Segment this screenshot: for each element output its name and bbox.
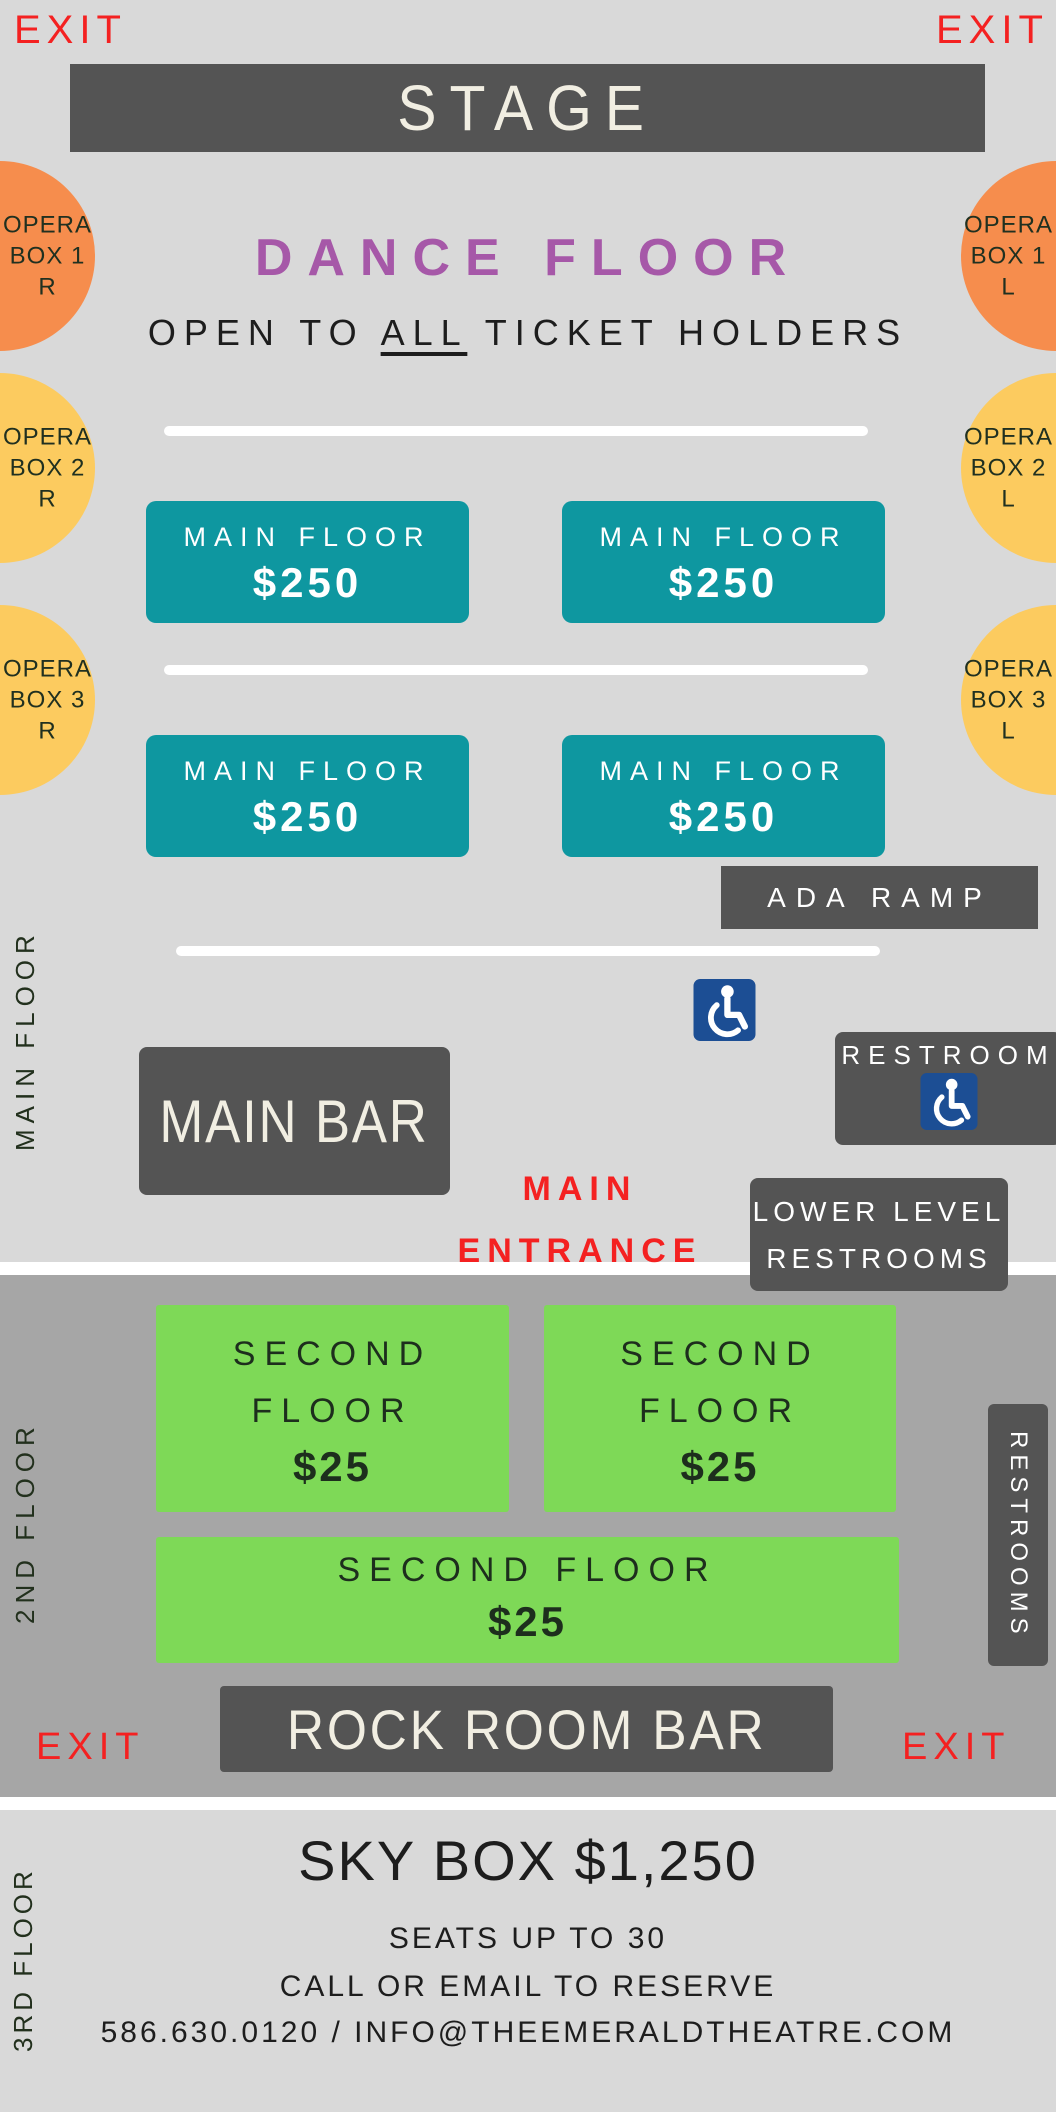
opera-box-3l-label: OPERABOX 3L [961,654,1056,747]
opera-box-2r-label: OPERABOX 2R [0,422,95,515]
main-floor-section-3: MAIN FLOOR $250 [146,735,469,857]
sky-box-capacity: SEATS UP TO 30 [0,1922,1056,1956]
second-floor-section-2: SECOND FLOOR $25 [544,1305,896,1512]
dance-floor-title: DANCE FLOOR [0,228,1056,288]
divider-line-3 [176,946,880,956]
main-floor-section-1: MAIN FLOOR $250 [146,501,469,623]
divider-line-1 [164,426,868,436]
second-floor-side-label: 2ND FLOOR [10,1380,41,1665]
sky-box-title: SKY BOX $1,250 [0,1828,1056,1893]
exit-label-top-left: EXIT [14,8,127,53]
main-floor-section-2: MAIN FLOOR $250 [562,501,885,623]
wheelchair-icon [693,979,756,1041]
restroom-box: RESTROOM [835,1032,1056,1145]
dance-floor-subtitle: OPEN TO ALL TICKET HOLDERS [0,312,1056,354]
opera-box-3r: OPERABOX 3R [0,605,95,795]
second-floor-section-1: SECOND FLOOR $25 [156,1305,509,1512]
lower-level-restrooms: LOWER LEVEL RESTROOMS [750,1178,1008,1291]
main-bar: MAIN BAR [139,1047,450,1195]
main-floor-section-4: MAIN FLOOR $250 [562,735,885,857]
restrooms-vertical-box: RESTROOMS [988,1404,1048,1666]
exit-label-bottom-right: EXIT [902,1726,1010,1769]
main-entrance-label: MAIN ENTRANCE [420,1158,740,1282]
rock-room-bar: ROCK ROOM BAR [220,1686,833,1772]
subtitle-emphasis: ALL [381,312,468,353]
opera-box-3l: OPERABOX 3L [961,605,1056,795]
wheelchair-icon [920,1073,978,1130]
sky-box-reserve-note: CALL OR EMAIL TO RESERVE [0,1970,1056,2004]
stage: STAGE [70,64,985,152]
subtitle-prefix: OPEN TO [148,312,365,353]
stage-label: STAGE [398,71,658,145]
main-floor-side-label: MAIN FLOOR [10,880,41,1200]
exit-label-bottom-left: EXIT [36,1726,144,1769]
ada-ramp: ADA RAMP [721,866,1038,929]
subtitle-suffix: TICKET HOLDERS [485,312,908,353]
opera-box-2r: OPERABOX 2R [0,373,95,563]
theatre-seating-chart: EXIT EXIT STAGE OPERABOX 1R OPERABOX 2R … [0,0,1056,2112]
sky-box-contact: 586.630.0120 / INFO@THEEMERALDTHEATRE.CO… [0,2016,1056,2050]
divider-line-2 [164,665,868,675]
second-floor-section-3: SECOND FLOOR $25 [156,1537,899,1663]
opera-box-2l: OPERABOX 2L [961,373,1056,563]
opera-box-3r-label: OPERABOX 3R [0,654,95,747]
exit-label-top-right: EXIT [936,8,1049,53]
opera-box-2l-label: OPERABOX 2L [961,422,1056,515]
